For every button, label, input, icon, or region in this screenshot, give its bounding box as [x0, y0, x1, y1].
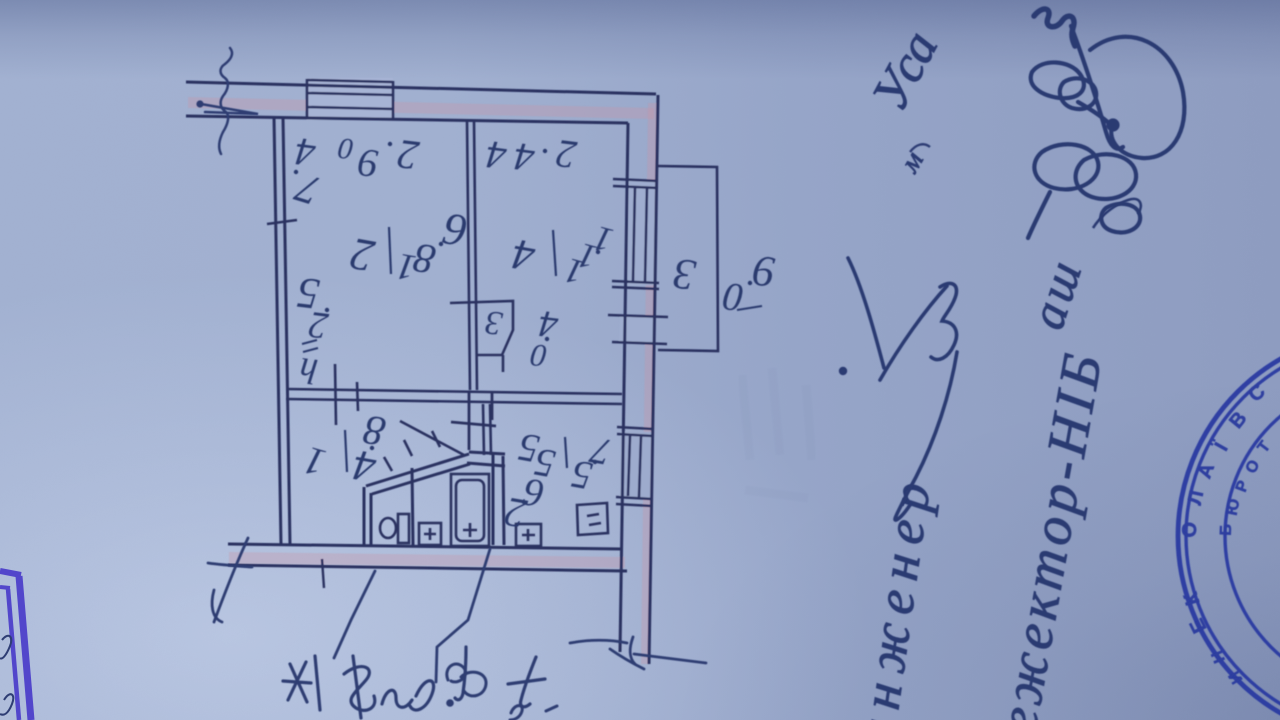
svg-text:Б: Б — [1218, 524, 1235, 536]
svg-text:Ю: Ю — [1224, 497, 1244, 516]
svg-text:О: О — [1179, 522, 1202, 538]
